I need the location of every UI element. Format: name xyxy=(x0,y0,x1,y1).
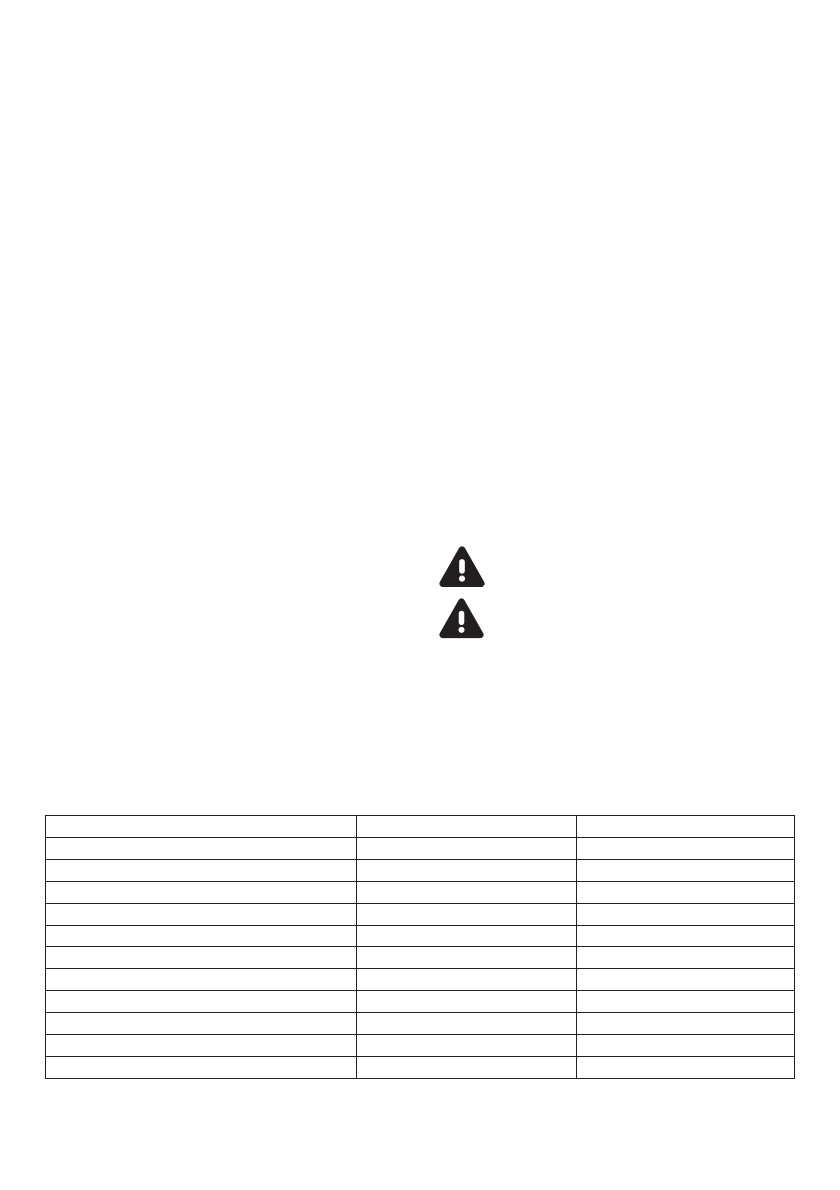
table-row xyxy=(46,1013,795,1035)
table-cell xyxy=(577,947,795,969)
table-cell xyxy=(357,816,577,838)
table-cell xyxy=(46,1056,357,1078)
table-row xyxy=(46,969,795,991)
table-cell xyxy=(577,925,795,947)
table-row xyxy=(46,1056,795,1078)
table-cell xyxy=(577,903,795,925)
table-cell xyxy=(46,837,357,859)
table-cell xyxy=(357,881,577,903)
table-cell xyxy=(357,859,577,881)
table-cell xyxy=(577,1013,795,1035)
table-cell xyxy=(46,881,357,903)
table-row xyxy=(46,991,795,1013)
table-cell xyxy=(46,947,357,969)
empty-spec-table xyxy=(45,815,795,1079)
table-cell xyxy=(577,837,795,859)
table-cell xyxy=(357,925,577,947)
table-row xyxy=(46,925,795,947)
table-cell xyxy=(46,1035,357,1057)
table-cell xyxy=(357,903,577,925)
table-row xyxy=(46,816,795,838)
warning-triangle-icon xyxy=(439,544,485,591)
warning-triangle-icon xyxy=(439,596,484,642)
table-cell xyxy=(577,1056,795,1078)
table-row xyxy=(46,1035,795,1057)
table-row xyxy=(46,903,795,925)
table-cell xyxy=(577,1035,795,1057)
table-cell xyxy=(46,1013,357,1035)
table-row xyxy=(46,837,795,859)
table-cell xyxy=(46,903,357,925)
table-cell xyxy=(577,991,795,1013)
table-row xyxy=(46,881,795,903)
empty-table-body xyxy=(46,816,795,1079)
table-row xyxy=(46,859,795,881)
table-cell xyxy=(577,859,795,881)
table-row xyxy=(46,947,795,969)
table-cell xyxy=(357,947,577,969)
table-cell xyxy=(577,969,795,991)
document-page xyxy=(0,0,840,1190)
table-cell xyxy=(46,925,357,947)
table-cell xyxy=(357,1056,577,1078)
table-cell xyxy=(46,969,357,991)
table-cell xyxy=(357,1035,577,1057)
table-cell xyxy=(357,837,577,859)
table-cell xyxy=(357,991,577,1013)
table-cell xyxy=(357,969,577,991)
table-cell xyxy=(577,881,795,903)
table-cell xyxy=(46,859,357,881)
table-cell xyxy=(357,1013,577,1035)
table-cell xyxy=(46,816,357,838)
table-cell xyxy=(46,991,357,1013)
table-cell xyxy=(577,816,795,838)
